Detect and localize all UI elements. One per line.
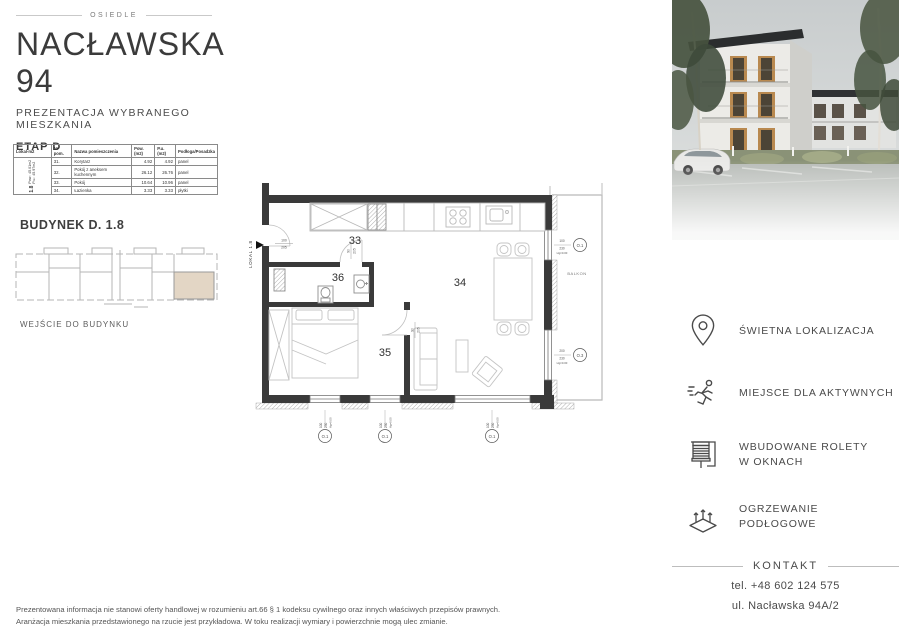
bedroom-furniture (269, 308, 358, 380)
dining-table (494, 243, 532, 335)
feature-label: OGRZEWANIE PODŁOGOWE (739, 502, 899, 532)
building-key-plan (14, 242, 220, 312)
svg-text:100: 100 (319, 422, 323, 428)
bed (292, 308, 358, 378)
svg-text:O.1: O.1 (322, 434, 329, 439)
svg-text:O.1: O.1 (382, 434, 389, 439)
feature-heating: OGRZEWANIE PODŁOGOWE (672, 486, 899, 548)
svg-text:230: 230 (324, 422, 328, 428)
room-floor: płytki (175, 187, 217, 195)
svg-text:O.1: O.1 (577, 243, 584, 248)
osiedle-row: OSIEDLE (16, 12, 212, 19)
room-36-label: 36 (332, 272, 344, 284)
room-nr: 34. (51, 187, 72, 195)
table-row: 1.8 Pow.: 45.01m2 P.u.: 45.97m2 31. Kory… (14, 158, 218, 166)
page-subtitle: PREZENTACJA WYBRANEGO MIESZKANIA (16, 107, 212, 131)
fade-overlay (672, 240, 899, 305)
washing-machine (274, 269, 285, 291)
highlighted-unit (174, 272, 214, 299)
room-pow: 3.33 (132, 187, 155, 195)
location-pin-icon (687, 314, 719, 348)
rooms-table: Lokal-m2 Nr pom. Nazwa pomieszczenia Pow… (13, 144, 218, 195)
room-34-label: 34 (454, 277, 466, 289)
room-pow: 4.92 (132, 158, 155, 166)
unit-id: 1.8 (29, 185, 35, 192)
divider-line (828, 566, 899, 567)
room-floor: panel (175, 158, 217, 166)
svg-text:O.1: O.1 (489, 434, 496, 439)
building-entrance-label: WEJŚCIE DO BUDYNKU (20, 320, 129, 329)
room-pu: 4.92 (155, 158, 176, 166)
svg-text:205: 205 (281, 246, 287, 250)
side-table (456, 340, 468, 372)
room-name: Łazienka (72, 187, 132, 195)
wardrobe (269, 310, 289, 380)
svg-text:205: 205 (417, 327, 421, 333)
room-33-label: 33 (349, 235, 361, 247)
feature-blinds: WBUDOWANE ROLETY W OKNACH (672, 424, 899, 486)
unit-summary-cell: 1.8 Pow.: 45.01m2 P.u.: 45.97m2 (14, 158, 52, 195)
svg-text:Hg=0.00: Hg=0.00 (557, 251, 568, 255)
unit-pu: P.u.: 45.97m2 (32, 160, 36, 184)
divider-line (16, 15, 82, 16)
svg-text:90: 90 (411, 328, 415, 332)
shaft (377, 204, 386, 230)
svg-text:Hg=0.00: Hg=0.00 (329, 417, 333, 428)
svg-text:100: 100 (486, 422, 490, 428)
svg-text:230: 230 (559, 247, 565, 251)
floorplan: BALKON (244, 182, 664, 450)
feature-label: MIEJSCE DLA AKTYWNYCH (739, 386, 894, 401)
svg-text:O.3: O.3 (577, 353, 584, 358)
kitchen-sink (486, 206, 512, 224)
feature-location: ŚWIETNA LOKALIZACJA (672, 300, 899, 362)
sofa (414, 328, 437, 390)
svg-text:230: 230 (559, 357, 565, 361)
cooktop (446, 207, 470, 227)
building-title: BUDYNEK D. 1.8 (20, 218, 124, 232)
feature-active: MIEJSCE DLA AKTYWNYCH (672, 362, 899, 424)
balcony-label: BALKON (567, 271, 586, 276)
divider-line (672, 566, 743, 567)
svg-text:100: 100 (379, 422, 383, 428)
lokal-label-group: LOKAL 1.8 (248, 240, 264, 268)
toilet (318, 286, 333, 303)
svg-text:200: 200 (559, 349, 565, 353)
col-header-floor: Podłoga/Posadzka (175, 145, 217, 158)
roller-blinds-icon (687, 438, 719, 472)
room-35-label: 35 (379, 347, 391, 359)
disclaimer-line: Prezentowana informacja nie stanowi ofer… (16, 604, 616, 616)
window-marker: 100 230 Hg=0.00 O.1 (379, 410, 393, 443)
svg-text:Hg=0.00: Hg=0.00 (389, 417, 393, 428)
window-marker: 100 230 Hg=0.00 O.1 (319, 410, 333, 443)
footer-disclaimer: Prezentowana informacja nie stanowi ofer… (16, 604, 616, 627)
feature-label: W OKNACH (739, 455, 868, 470)
features-list: ŚWIETNA LOKALIZACJA MIEJSCE DLA AKTYWNYC… (672, 300, 899, 548)
svg-text:Hg=0.00: Hg=0.00 (557, 361, 568, 365)
contact-phone: tel. +48 602 124 575 (672, 580, 899, 592)
floor-heating-icon (687, 500, 719, 534)
contact-title-row: KONTAKT (672, 560, 899, 572)
contact-section: KONTAKT tel. +48 602 124 575 ul. Nacławs… (672, 560, 899, 612)
livingroom-furniture (414, 243, 532, 390)
window-markers-bottom: 100 230 Hg=0.00 O.1 100 230 Hg=0.00 O.1 … (319, 410, 500, 443)
armchair (472, 356, 503, 388)
shaft (368, 204, 377, 230)
room-name: Pokój z aneksem kuchennym (72, 166, 132, 179)
svg-text:90: 90 (347, 249, 351, 253)
room-pow: 26.12 (132, 166, 155, 179)
room-name: Korytarz (72, 158, 132, 166)
balcony-door-marker: 200 230 Hg=0.00 O.3 (554, 349, 587, 366)
room-nr: 31. (51, 158, 72, 166)
room-nr: 32. (51, 166, 72, 179)
room-pow: 10.64 (132, 179, 155, 187)
window-marker: 100 230 Hg=0.00 O.1 (554, 239, 587, 256)
room-pu: 26.76 (155, 166, 176, 179)
svg-text:100: 100 (281, 239, 287, 243)
svg-text:100: 100 (559, 239, 565, 243)
osiedle-label: OSIEDLE (90, 12, 138, 19)
contact-title: KONTAKT (753, 560, 818, 572)
svg-text:230: 230 (491, 422, 495, 428)
balcony (550, 183, 602, 400)
lokal-label: LOKAL 1.8 (248, 240, 253, 268)
contact-address: ul. Nacławska 94A/2 (672, 600, 899, 612)
page-title: NACŁAWSKA 94 (16, 26, 212, 100)
room-floor: panel (175, 166, 217, 179)
disclaimer-line: Aranżacja mieszkania przedstawionego na … (16, 616, 616, 628)
washbasin (354, 275, 369, 293)
feature-label: ŚWIETNA LOKALIZACJA (739, 324, 874, 339)
feature-label: WBUDOWANE ROLETY (739, 440, 868, 455)
col-header-pu: P.u.(m2) (155, 145, 176, 158)
col-header-name: Nazwa pomieszczenia (72, 145, 132, 158)
col-header-pow: Pow.(m2) (132, 145, 155, 158)
window-markers-right: 100 230 Hg=0.00 O.1 200 230 Hg=0.00 O.3 (554, 239, 587, 366)
room-floor: panel (175, 179, 217, 187)
header: OSIEDLE NACŁAWSKA 94 PREZENTACJA WYBRANE… (16, 12, 212, 153)
building-render-image (672, 0, 899, 305)
runner-icon (687, 376, 719, 410)
svg-text:205: 205 (353, 248, 357, 254)
divider-line (146, 15, 212, 16)
room-pu: 3.33 (155, 187, 176, 195)
bathroom-fixtures (274, 269, 369, 303)
room-name: Pokój (72, 179, 132, 187)
window-marker: 100 230 Hg=0.00 O.1 (486, 410, 500, 443)
room-pu: 10.96 (155, 179, 176, 187)
svg-text:230: 230 (384, 422, 388, 428)
svg-text:Hg=0.00: Hg=0.00 (496, 417, 500, 428)
col-header-lokal: Lokal-m2 (14, 145, 52, 158)
room-nr: 33. (51, 179, 72, 187)
col-header-nr: Nr pom. (51, 145, 72, 158)
kitchen-counter (310, 203, 545, 231)
